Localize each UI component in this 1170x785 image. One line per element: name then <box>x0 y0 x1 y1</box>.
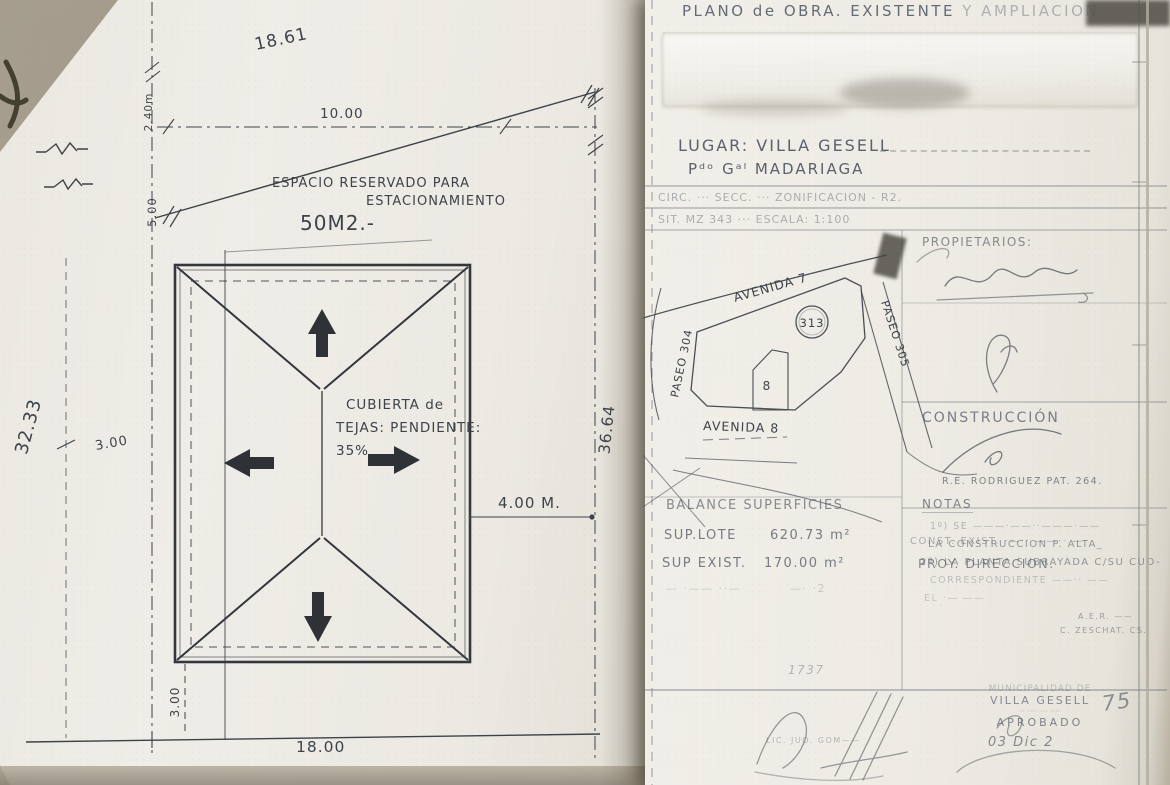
signature-caption: LIC. JUO. GOM—— <box>766 736 861 745</box>
balance-row-exist-label: SUP EXIST. <box>662 556 746 571</box>
builder-signature <box>943 429 1061 472</box>
roof-labels: CUBIERTA de TEJAS: PENDIENTE: 35% <box>335 397 481 459</box>
parking-labels: ESPACIO RESERVADO PARA ESTACIONAMIENTO 5… <box>272 176 506 235</box>
street-avenida-8: AVENIDA 8 <box>703 418 780 436</box>
sheet-title-main: PLANO de OBRA. EXISTENTE <box>682 2 955 20</box>
site-plan-drawing: 18.61 10.00 2.40m 5.00 32.33 3.00 36.64 … <box>0 0 650 785</box>
dim-2-40: 2.40m <box>143 93 155 132</box>
catastro-row: CIRC. ··· SECC. ··· ZONIFICACION - R2. <box>658 191 902 204</box>
scanned-plan-photo: 18.61 10.00 2.40m 5.00 32.33 3.00 36.64 … <box>0 0 1170 785</box>
title-sheet-drawing: AVENIDA 7 AVENIDA 8 PASEO 304 PASEO 305 … <box>645 0 1170 785</box>
approval-stamp: MUNICIPALIDAD DE VILLA GESELL ·· ···· ··… <box>955 684 1125 729</box>
credential-2: C. ZESCHAT. CS. <box>1060 626 1147 635</box>
lugar-label: LUGAR: VILLA GESELL <box>678 136 891 155</box>
roof-line1: CUBIERTA de <box>346 397 444 413</box>
credential-1: A.E.R. —— <box>1078 612 1133 621</box>
location-map <box>643 255 977 527</box>
balance-row-exist-value: 170.00 m² <box>764 556 845 571</box>
location-map-labels: AVENIDA 7 AVENIDA 8 PASEO 304 PASEO 305 … <box>668 269 912 435</box>
sheet-title: PLANO de OBRA. EXISTENTE Y AMPLIACION <box>682 2 1099 20</box>
approval-date: 03 Dic 2 <box>988 735 1054 750</box>
dim-3-00-left: 3.00 <box>94 433 129 453</box>
document-number: 1737 <box>788 663 825 677</box>
sheet-frame-lines <box>645 0 1167 785</box>
propietarios-label: PROPIETARIOS: <box>922 235 1032 249</box>
sheet-title-faded: Y AMPLIACION <box>962 2 1099 20</box>
parking-area: 50M2.- <box>300 211 375 235</box>
approval-year: 75 <box>1100 688 1133 716</box>
left-sheet-bottom-shadow <box>0 766 650 785</box>
lugar-underline <box>880 150 1090 152</box>
balance-title: BALANCE SUPERFICIES <box>666 498 843 513</box>
nota-line-1: 1º) SE ———·——··———·—— <box>930 521 1101 532</box>
dim-18-61: 18.61 <box>253 24 310 55</box>
parking-line1: ESPACIO RESERVADO PARA <box>272 176 470 191</box>
notas-title: NOTAS <box>922 497 973 513</box>
stamp-line-2: VILLA GESELL <box>955 694 1125 707</box>
parking-line2: ESTACIONAMIENTO <box>366 194 506 209</box>
nota-line-2: LA CONSTRUCCION P. ALTA_ <box>928 539 1103 550</box>
dim-10-00: 10.00 <box>320 106 364 122</box>
nota-line-5: EL ·— —— <box>924 593 985 604</box>
owner-signature <box>945 268 1077 286</box>
setback-dimension-line <box>470 511 595 523</box>
stamp-line-3: ·· ···· ··· ···· <box>955 707 1125 716</box>
roof-line2: TEJAS: PENDIENTE: <box>335 420 481 436</box>
balance-row-lote-value: 620.73 m² <box>770 528 851 543</box>
block-number: 313 <box>800 316 825 330</box>
stamp-line-4: APROBADO <box>955 716 1125 729</box>
lot-boundary-lines <box>26 2 603 760</box>
roof-line3: 35% <box>336 443 369 459</box>
nota-line-3: 2º) LA PLANTA SUBRAYADA C/SU CUO- <box>920 557 1161 568</box>
stamp-line-1: MUNICIPALIDAD DE <box>955 684 1125 694</box>
construccion-label: CONSTRUCCIÓN <box>922 410 1060 426</box>
arrow-right-icon <box>368 446 420 474</box>
arrow-left-icon <box>224 449 274 477</box>
street-avenida-7: AVENIDA 7 <box>732 269 809 304</box>
dim-36-64: 36.64 <box>595 404 618 455</box>
stamp-oval <box>957 750 1115 772</box>
dim-3-00-bottom: 3.00 <box>168 687 182 718</box>
boundary-break-symbols <box>36 143 93 189</box>
director-signature <box>987 335 1017 392</box>
plan-dimension-labels: 18.61 10.00 2.40m 5.00 32.33 3.00 36.64 … <box>11 24 618 756</box>
nota-line-4: CORRESPONDIENTE ——·· —— <box>930 575 1109 586</box>
balance-row-lote-label: SUP.LOTE <box>664 528 737 543</box>
arrow-down-icon <box>304 592 332 642</box>
dim-18-00: 18.00 <box>296 738 345 756</box>
dim-5-00: 5.00 <box>145 197 159 227</box>
sit-row: SIT. MZ 343 ··· ESCALA: 1:100 <box>658 213 850 226</box>
arrow-up-icon <box>308 309 336 357</box>
dim-4-00: 4.00 M. <box>498 494 561 512</box>
street-paseo-305: PASEO 305 <box>878 299 912 369</box>
lot-number: 8 <box>763 379 772 393</box>
balance-row-3-label: — ·—— ··— <box>666 582 741 595</box>
balance-row-3-value: —· ·2 <box>790 582 826 595</box>
dim-32-33: 32.33 <box>11 397 46 457</box>
partido-label: Pᵈᵒ Gᵃˡ MADARIAGA <box>688 160 864 178</box>
builder-name: R.E. RODRIGUEZ PAT. 264. <box>942 476 1103 487</box>
